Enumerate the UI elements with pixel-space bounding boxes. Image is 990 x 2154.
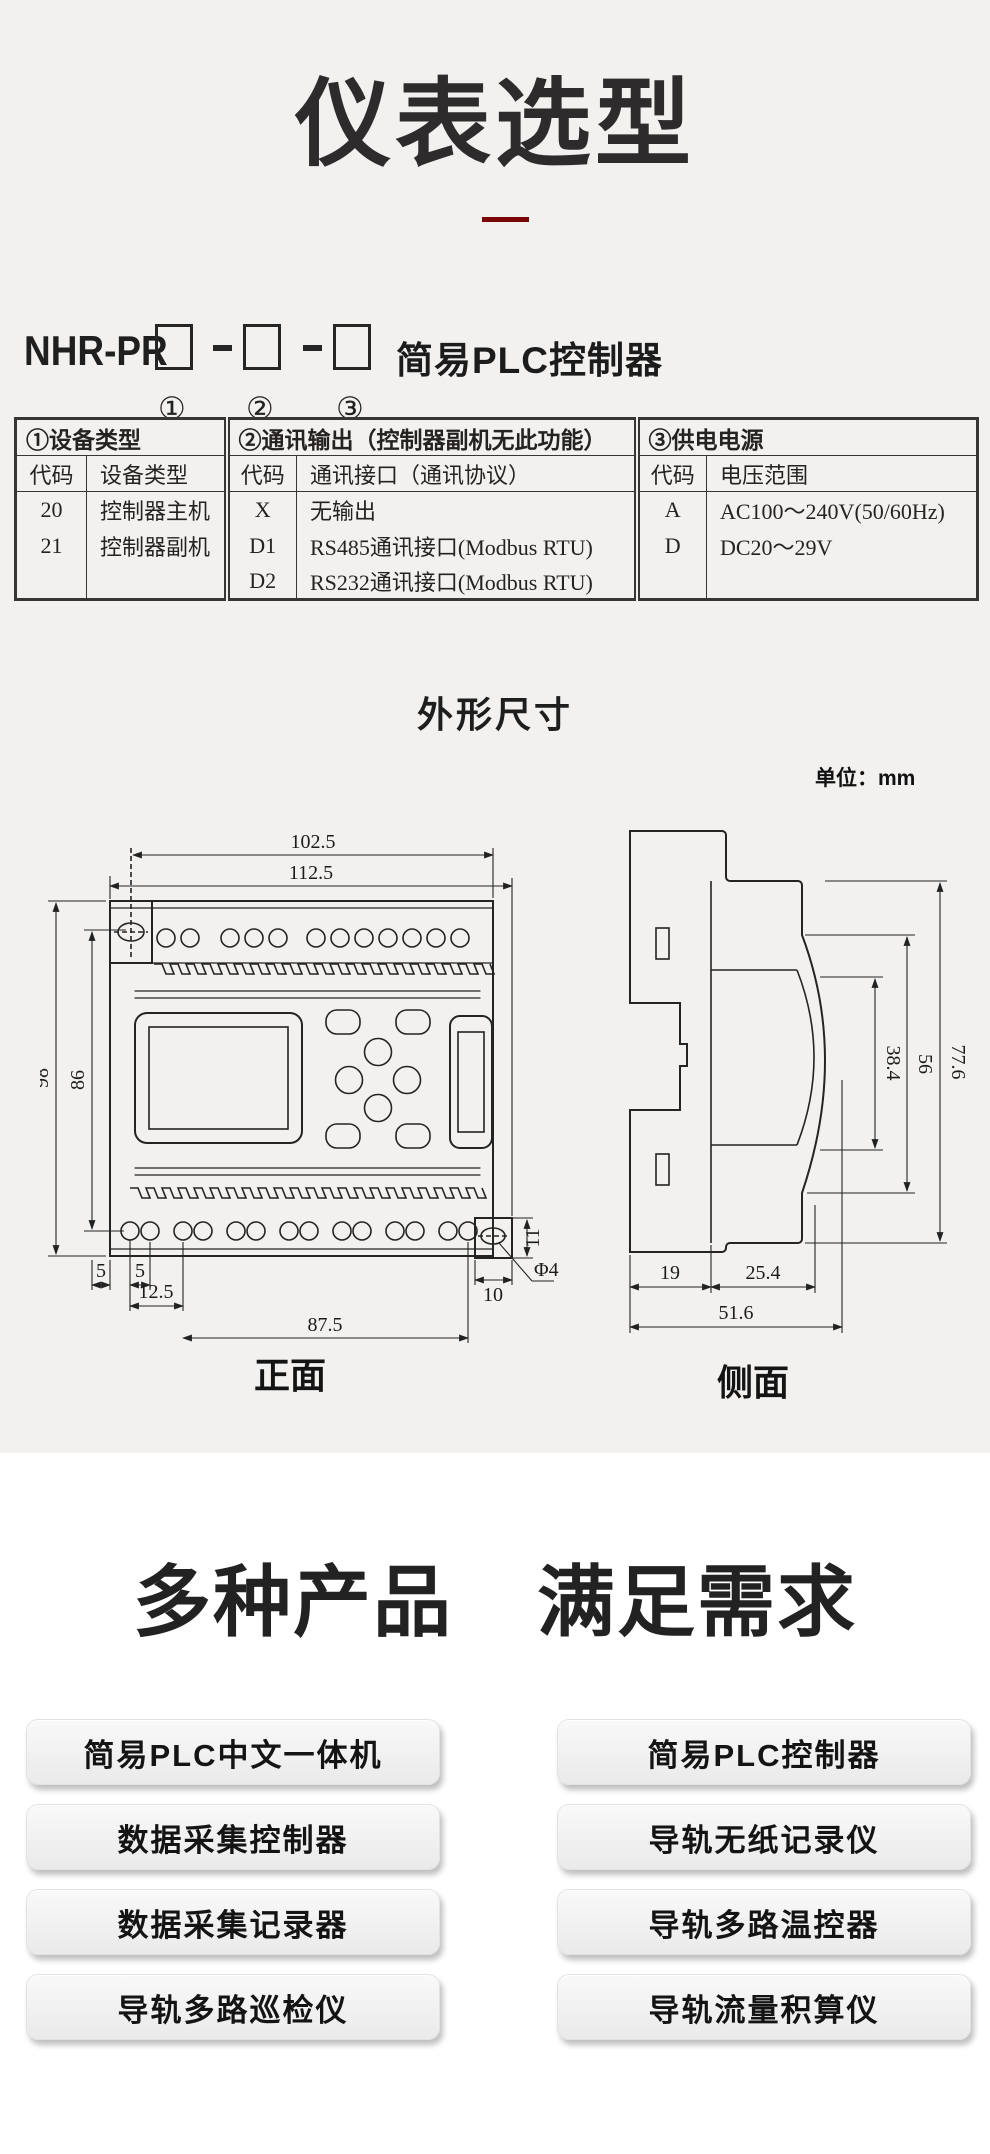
col-comm-interface: 通讯接口（通讯协议） [297,456,637,492]
product-button-rail-scanner[interactable]: 导轨多路巡检仪 [26,1974,440,2040]
cell-code: X [227,492,297,528]
products-heading: 多种产品 满足需求 [0,1540,990,1652]
cell-code: D2 [227,564,297,600]
product-button-rail-flow-totalizer[interactable]: 导轨流量积算仪 [557,1974,971,2040]
unit-label: 单位：mm [815,762,915,792]
dim-side-window-height: 38.4 [882,1046,904,1081]
dim-front-offset-c: 12.5 [139,1281,174,1303]
cell-code: 21 [16,528,87,564]
col-device-type: 设备类型 [87,456,227,492]
cell-voltage [707,564,978,600]
col-voltage-range: 电压范围 [707,456,978,492]
products-heading-left: 多种产品 [133,1540,453,1652]
cell-device [87,564,227,600]
product-button-rail-paperless-recorder[interactable]: 导轨无纸记录仪 [557,1804,971,1870]
section-device-type: ①设备类型 [16,419,227,456]
section-power-supply: ③供电电源 [637,419,978,456]
cell-device: 控制器主机 [87,492,227,528]
model-code-box-3 [333,324,371,370]
dim-side-height-total: 77.6 [947,1045,965,1080]
cell-interface: 无输出 [297,492,637,528]
model-suffix: 简易PLC控制器 [396,330,663,384]
dimensions-heading: 外形尺寸 [0,686,990,738]
products-heading-right: 满足需求 [537,1540,857,1652]
front-view-label: 正面 [254,1355,326,1396]
section-comm-output: ②通讯输出（控制器副机无此功能） [227,419,637,456]
product-button-data-acq-controller[interactable]: 数据采集控制器 [26,1804,440,1870]
product-button-rail-temp-controller[interactable]: 导轨多路温控器 [557,1889,971,1955]
table-section-header-row: ①设备类型 ②通讯输出（控制器副机无此功能） ③供电电源 [16,419,978,456]
dash-separator [213,345,232,351]
title-underline [482,217,529,222]
product-spec-page: 仪表选型 NHR-PR 简易PLC控制器 ① ② ③ ①设备类型 ②通讯输出（控… [0,0,990,2154]
dim-side-depth-b: 25.4 [746,1262,781,1284]
dim-side-height-mid: 56 [914,1054,936,1074]
col-code: 代码 [637,456,707,492]
cell-code: D [637,528,707,564]
side-view-label: 侧面 [717,1362,789,1403]
table-row: D2 RS232通讯接口(Modbus RTU) [16,564,978,600]
product-button-plc-controller[interactable]: 简易PLC控制器 [557,1719,971,1785]
cell-voltage: AC100～240V(50/60Hz) [707,492,978,528]
col-code: 代码 [16,456,87,492]
cell-code: D1 [227,528,297,564]
cell-code [637,564,707,600]
model-code-box-1 [155,324,193,370]
model-code-box-2 [243,324,281,370]
cell-interface: RS485通讯接口(Modbus RTU) [297,528,637,564]
cell-device: 控制器副机 [87,528,227,564]
dim-side-depth-total: 51.6 [719,1302,754,1324]
cell-interface: RS232通讯接口(Modbus RTU) [297,564,637,600]
product-button-plc-allinone[interactable]: 简易PLC中文一体机 [26,1719,440,1785]
table-row: 21 控制器副机 D1 RS485通讯接口(Modbus RTU) D DC20… [16,528,978,564]
dim-side-depth-a: 19 [660,1262,680,1284]
front-view-drawing: 102.5 112.5 98 86 5 5 12.5 87.5 11 10 Φ4… [40,828,560,1403]
cell-code: A [637,492,707,528]
dim-front-height-total: 98 [40,1068,53,1088]
dim-front-offset-a: 5 [96,1260,106,1282]
dim-ear-width: 10 [483,1284,503,1306]
dim-front-offset-b: 5 [135,1260,145,1282]
page-title: 仪表选型 [0,46,990,185]
cell-code: 20 [16,492,87,528]
dim-front-width-top: 102.5 [291,831,336,853]
dim-front-terminal-span: 87.5 [308,1314,343,1336]
dash-separator [303,345,322,351]
ordering-spec-table: ①设备类型 ②通讯输出（控制器副机无此功能） ③供电电源 代码 设备类型 代码 … [14,417,979,601]
product-button-data-acq-recorder[interactable]: 数据采集记录器 [26,1889,440,1955]
side-view-drawing: 77.6 56 38.4 19 25.4 51.6 侧面 [535,825,965,1410]
table-row: 20 控制器主机 X 无输出 A AC100～240V(50/60Hz) [16,492,978,528]
dim-front-height-inner: 86 [67,1070,89,1090]
model-prefix: NHR-PR [24,327,168,375]
cell-code [16,564,87,600]
table-column-header-row: 代码 设备类型 代码 通讯接口（通讯协议） 代码 电压范围 [16,456,978,492]
cell-voltage: DC20～29V [707,528,978,564]
dim-front-width-total: 112.5 [289,862,333,884]
col-code: 代码 [227,456,297,492]
